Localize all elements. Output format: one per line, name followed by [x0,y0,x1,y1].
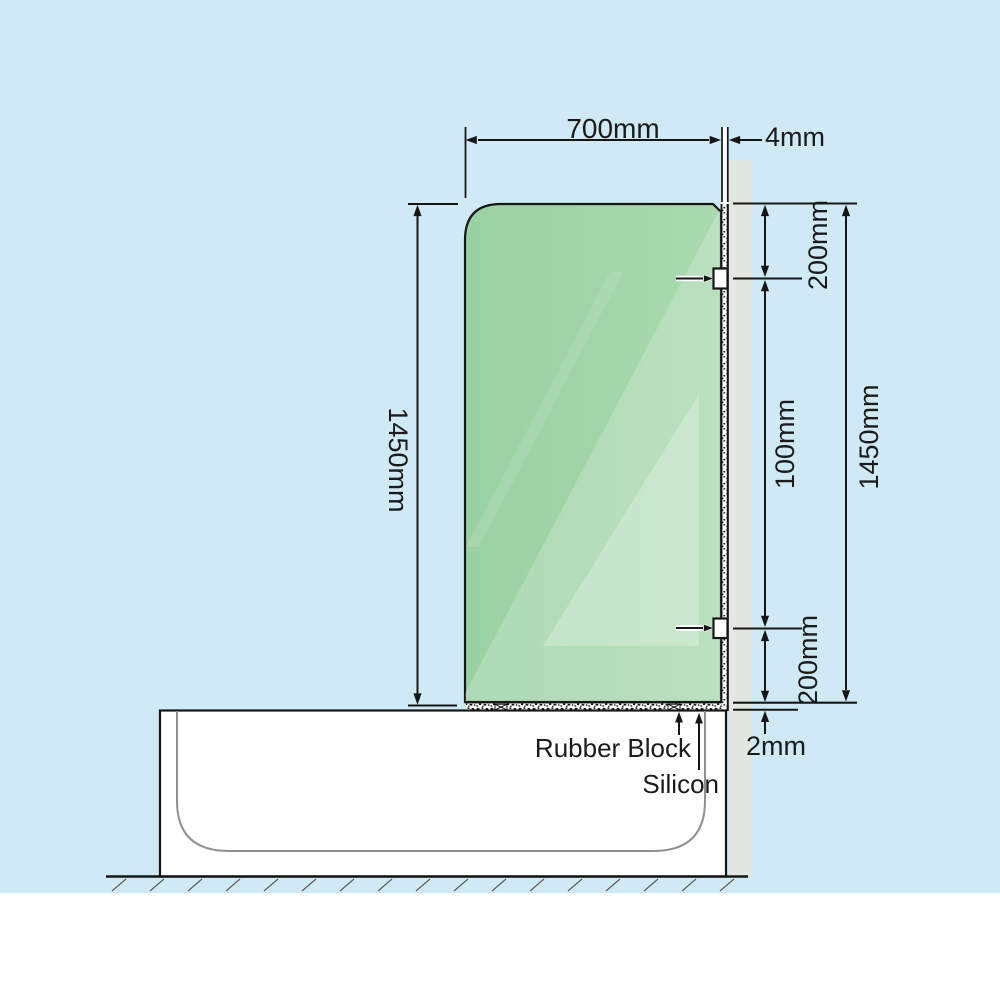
svg-text:200mm: 200mm [803,200,833,290]
svg-text:200mm: 200mm [793,615,823,705]
svg-text:Rubber Block: Rubber Block [535,733,692,763]
svg-text:Silicon: Silicon [642,769,719,799]
svg-text:1450mm: 1450mm [854,384,884,489]
svg-text:100mm: 100mm [770,399,800,489]
svg-text:4mm: 4mm [765,122,825,152]
svg-text:700mm: 700mm [566,113,659,144]
svg-text:2mm: 2mm [746,731,806,761]
svg-text:1450mm: 1450mm [383,407,413,512]
